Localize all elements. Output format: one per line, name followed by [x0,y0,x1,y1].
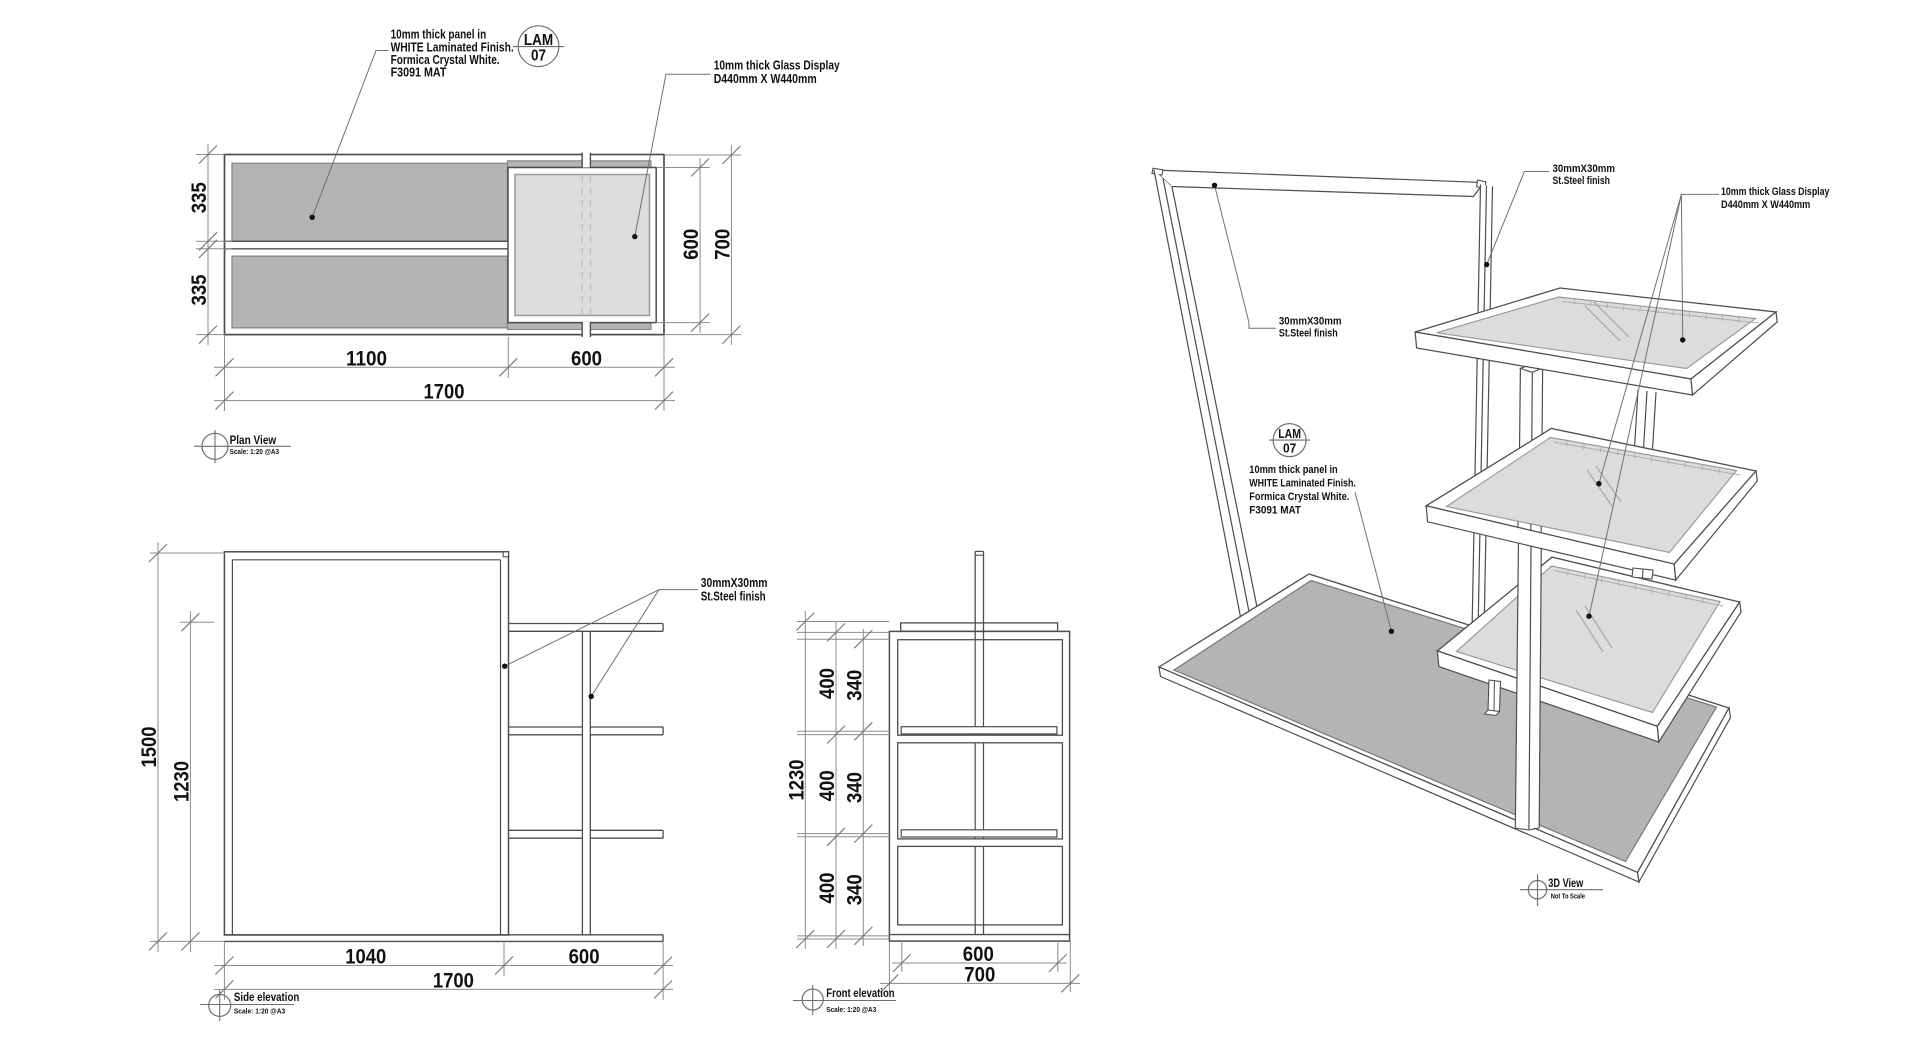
svg-text:340: 340 [842,670,866,701]
svg-text:Scale: 1:20 @A3: Scale: 1:20 @A3 [234,1007,285,1016]
svg-text:30mmX30mm: 30mmX30mm [1279,315,1342,327]
svg-text:St.Steel finish: St.Steel finish [701,590,766,604]
svg-text:340: 340 [842,874,866,905]
svg-text:30mmX30mm: 30mmX30mm [1553,163,1616,175]
svg-text:1230: 1230 [784,759,808,800]
svg-text:335: 335 [187,182,211,213]
svg-text:400: 400 [815,668,839,699]
svg-text:F3091 MAT: F3091 MAT [391,66,447,80]
svg-text:F3091 MAT: F3091 MAT [1249,505,1301,517]
svg-text:600: 600 [571,346,602,370]
svg-text:1040: 1040 [345,945,386,969]
svg-text:1500: 1500 [137,726,161,767]
svg-text:600: 600 [679,229,703,260]
svg-text:700: 700 [710,229,734,260]
svg-text:3D View: 3D View [1548,876,1584,890]
svg-text:St.Steel finish: St.Steel finish [1279,328,1338,340]
svg-text:Formica Crystal White.: Formica Crystal White. [1249,491,1349,503]
svg-text:400: 400 [815,770,839,801]
svg-text:07: 07 [531,47,546,64]
svg-text:Plan View: Plan View [230,433,277,447]
svg-text:400: 400 [815,872,839,903]
svg-text:340: 340 [842,772,866,803]
svg-text:Scale: 1:20 @A3: Scale: 1:20 @A3 [826,1005,876,1014]
svg-text:1100: 1100 [346,346,387,370]
svg-text:D440mm X W440mm: D440mm X W440mm [714,72,817,86]
svg-text:LAM: LAM [524,32,553,49]
svg-text:30mmX30mm: 30mmX30mm [701,576,768,590]
svg-text:07: 07 [1283,441,1296,456]
svg-text:10mm thick Glass Display: 10mm thick Glass Display [1721,186,1830,198]
svg-text:700: 700 [964,962,995,986]
svg-text:Not To Scale: Not To Scale [1551,891,1585,900]
svg-text:10mm thick panel in: 10mm thick panel in [1249,464,1337,476]
svg-text:10mm thick Glass Display: 10mm thick Glass Display [714,59,840,73]
svg-text:1700: 1700 [424,380,465,404]
svg-text:600: 600 [569,945,600,969]
svg-text:LAM: LAM [1278,426,1301,441]
svg-text:335: 335 [187,274,211,305]
svg-text:Scale: 1:20 @A3: Scale: 1:20 @A3 [230,447,280,456]
svg-text:WHITE Laminated Finish.: WHITE Laminated Finish. [1249,478,1356,490]
svg-text:Front elevation: Front elevation [826,986,894,1000]
svg-text:St.Steel finish: St.Steel finish [1553,175,1611,187]
svg-text:D440mm X W440mm: D440mm X W440mm [1721,199,1810,211]
svg-text:1230: 1230 [169,761,193,802]
svg-text:Side elevation: Side elevation [234,990,300,1004]
svg-text:1700: 1700 [433,968,474,992]
